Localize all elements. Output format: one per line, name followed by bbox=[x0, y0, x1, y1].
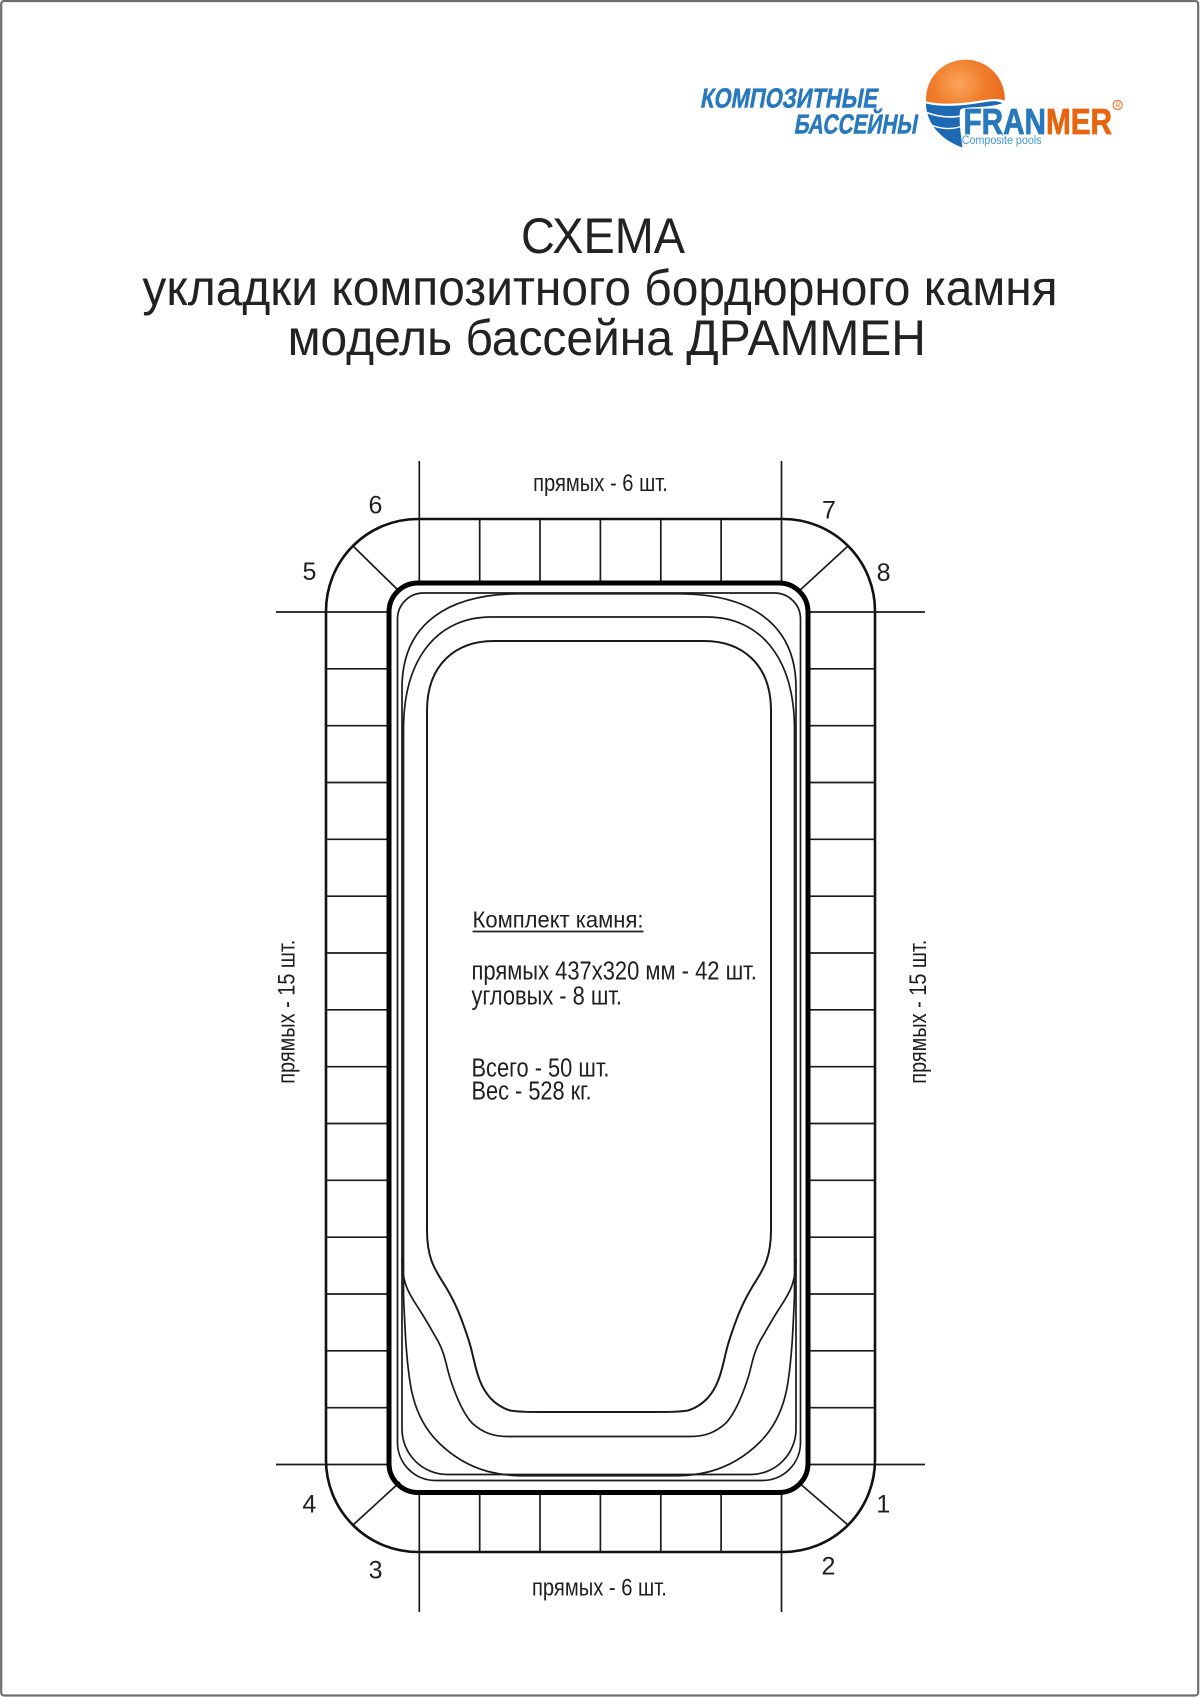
svg-text:2: 2 bbox=[821, 1552, 835, 1580]
svg-text:прямых - 6 шт.: прямых - 6 шт. bbox=[533, 470, 668, 497]
svg-text:3: 3 bbox=[369, 1556, 383, 1584]
svg-text:СХЕМА: СХЕМА bbox=[521, 208, 686, 264]
svg-text:4: 4 bbox=[302, 1491, 316, 1519]
svg-text:угловых - 8 шт.: угловых - 8 шт. bbox=[472, 981, 623, 1011]
svg-text:прямых - 15 шт.: прямых - 15 шт. bbox=[273, 940, 300, 1084]
svg-text:прямых - 6 шт.: прямых - 6 шт. bbox=[532, 1574, 667, 1601]
svg-text:Комплект камня:: Комплект камня: bbox=[473, 907, 644, 933]
svg-text:R: R bbox=[1115, 103, 1120, 110]
svg-text:Вес - 528 кг.: Вес - 528 кг. bbox=[472, 1076, 592, 1106]
svg-text:1: 1 bbox=[876, 1491, 890, 1519]
svg-text:прямых - 15 шт.: прямых - 15 шт. bbox=[905, 940, 932, 1084]
svg-text:модель бассейна ДРАММЕН: модель бассейна ДРАММЕН bbox=[288, 310, 926, 366]
svg-text:6: 6 bbox=[369, 491, 383, 519]
svg-text:8: 8 bbox=[877, 559, 891, 587]
svg-text:укладки композитного бордюрног: укладки композитного бордюрного камня bbox=[142, 260, 1057, 316]
svg-text:5: 5 bbox=[303, 558, 317, 586]
svg-text:Composite pools: Composite pools bbox=[962, 133, 1042, 147]
svg-text:БАССЕЙНЫ: БАССЕЙНЫ bbox=[792, 108, 920, 139]
svg-text:7: 7 bbox=[822, 497, 836, 525]
